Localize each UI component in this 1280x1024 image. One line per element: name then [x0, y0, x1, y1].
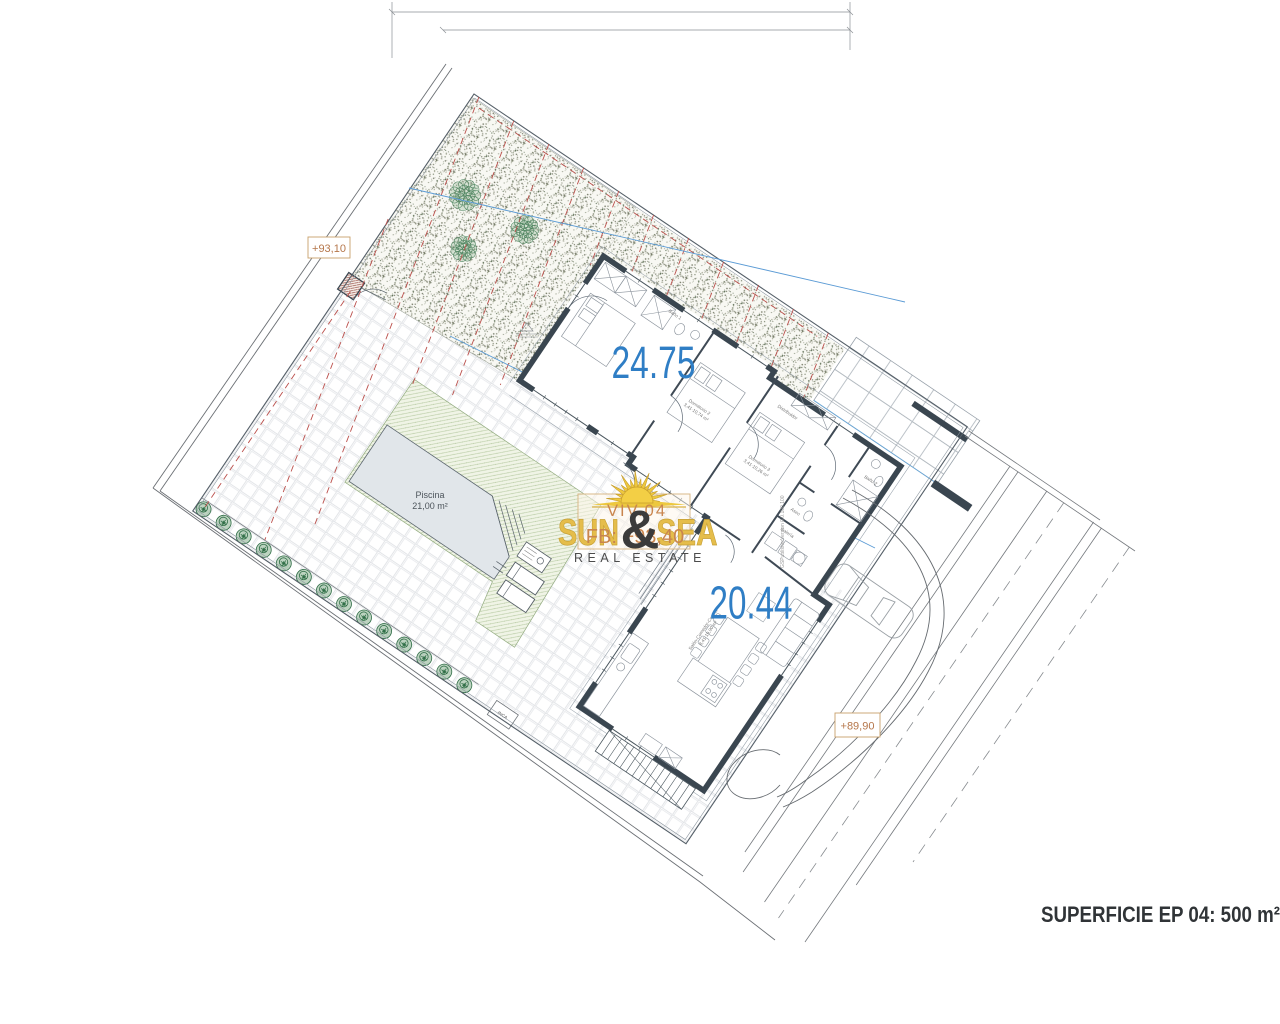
svg-text:REAL ESTATE: REAL ESTATE [574, 551, 706, 565]
svg-text:+89,90: +89,90 [841, 721, 875, 733]
svg-text:SUPERFICIE EP 04: 500 m²: SUPERFICIE EP 04: 500 m² [1041, 902, 1280, 927]
svg-text:20.44: 20.44 [710, 577, 793, 629]
svg-text:Piscina: Piscina [415, 490, 444, 500]
svg-text:24.75: 24.75 [612, 337, 696, 388]
svg-text:+93,10: +93,10 [312, 243, 346, 255]
svg-text:21,00 m²: 21,00 m² [412, 501, 448, 511]
svg-text:GSPublisherVersion 0.0.100.100: GSPublisherVersion 0.0.100.100 [780, 495, 786, 568]
